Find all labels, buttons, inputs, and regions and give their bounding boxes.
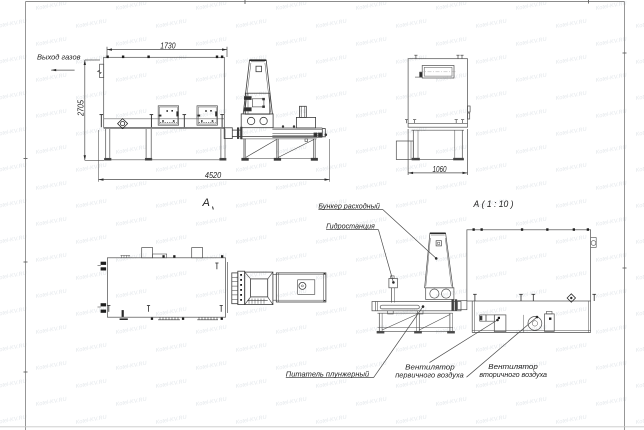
svg-text:Бункер расходный: Бункер расходный [318,201,380,210]
svg-text:А ( 1 : 10 ): А ( 1 : 10 ) [473,199,514,210]
svg-text:Выход газов: Выход газов [37,52,81,61]
svg-text:1060: 1060 [433,165,447,174]
svg-text:А: А [202,197,210,209]
svg-text:Гидростанция: Гидростанция [326,222,375,231]
svg-text:вторичного воздуха: вторичного воздуха [479,370,547,379]
svg-text:1730: 1730 [160,42,176,51]
svg-text:Питатель плунжерный: Питатель плунжерный [286,369,370,378]
svg-text:4520: 4520 [205,171,222,180]
svg-text:2705: 2705 [76,100,85,117]
svg-text:первичного воздуха: первичного воздуха [395,371,464,380]
